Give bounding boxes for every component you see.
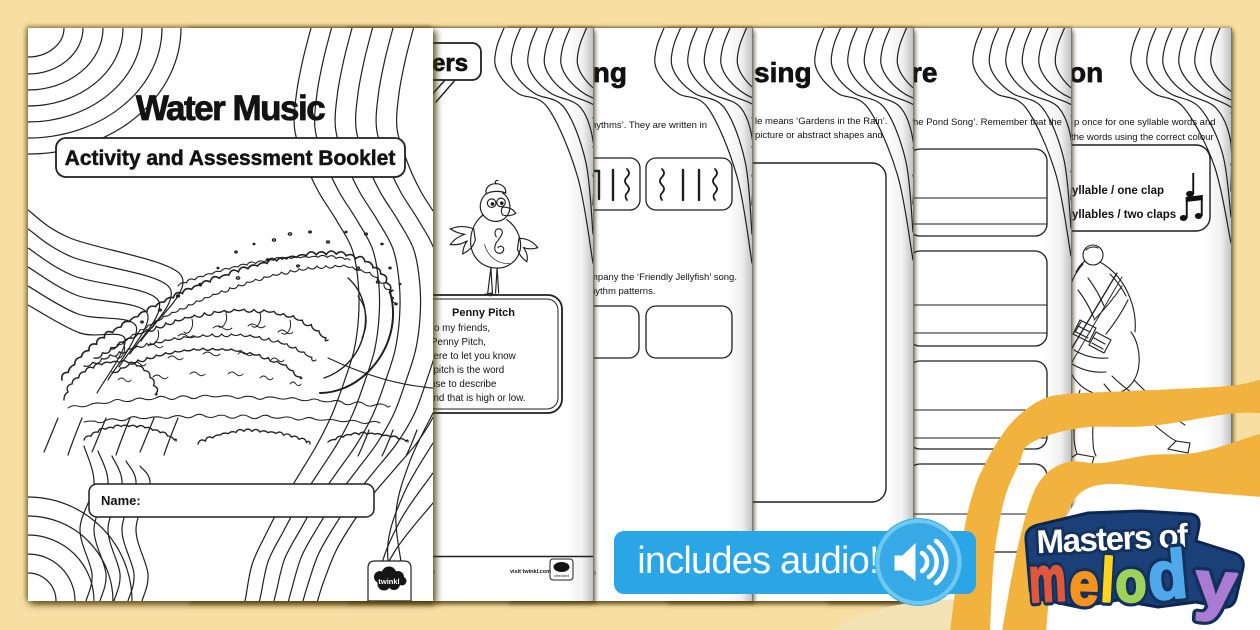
svg-text:yllable / one clap: yllable / one clap bbox=[1072, 185, 1164, 197]
svg-text:Penny Pitch: Penny Pitch bbox=[452, 307, 515, 319]
svg-text:hythms’. They are written in: hythms’. They are written in bbox=[591, 120, 707, 131]
svg-text:t pitch is the word: t pitch is the word bbox=[428, 365, 504, 376]
svg-text:le means ‘Gardens in the Rain’: le means ‘Gardens in the Rain’. bbox=[755, 116, 888, 127]
svg-text:re: re bbox=[911, 57, 937, 88]
svg-text:on: on bbox=[1069, 57, 1103, 88]
svg-text:twinkl: twinkl bbox=[378, 577, 399, 586]
svg-text:mpany the ‘Friendly Jellyfish’: mpany the ‘Friendly Jellyfish’ song. bbox=[590, 272, 737, 283]
svg-text:p once for one syllable words: p once for one syllable words and bbox=[1074, 117, 1216, 128]
svg-text:Penny Pitch,: Penny Pitch, bbox=[431, 337, 486, 348]
svg-text:picture or abstract shapes and: picture or abstract shapes and bbox=[755, 130, 883, 141]
svg-text:visit twinkl.com: visit twinkl.com bbox=[510, 569, 551, 575]
svg-text:here to let you know: here to let you know bbox=[428, 351, 517, 362]
svg-text:the words using the correct co: the words using the correct colour bbox=[1071, 132, 1214, 143]
svg-text:ers: ers bbox=[432, 50, 468, 77]
svg-text:sing: sing bbox=[754, 57, 812, 88]
svg-text:he Pond Song’. Remember that t: he Pond Song’. Remember that the bbox=[913, 117, 1062, 128]
svg-text:yllables / two claps: yllables / two claps bbox=[1072, 209, 1176, 221]
svg-text:o my friends,: o my friends, bbox=[434, 323, 490, 334]
svg-text:Water Music: Water Music bbox=[136, 89, 325, 128]
svg-text:use to describe: use to describe bbox=[430, 379, 497, 390]
svg-text:hythm patterns.: hythm patterns. bbox=[590, 286, 655, 297]
svg-text:checked: checked bbox=[554, 573, 569, 578]
svg-text:und that is high or low.: und that is high or low. bbox=[428, 393, 526, 404]
svg-text:Activity and Assessment Bookle: Activity and Assessment Booklet bbox=[65, 147, 396, 170]
svg-text:Name:: Name: bbox=[101, 493, 141, 508]
